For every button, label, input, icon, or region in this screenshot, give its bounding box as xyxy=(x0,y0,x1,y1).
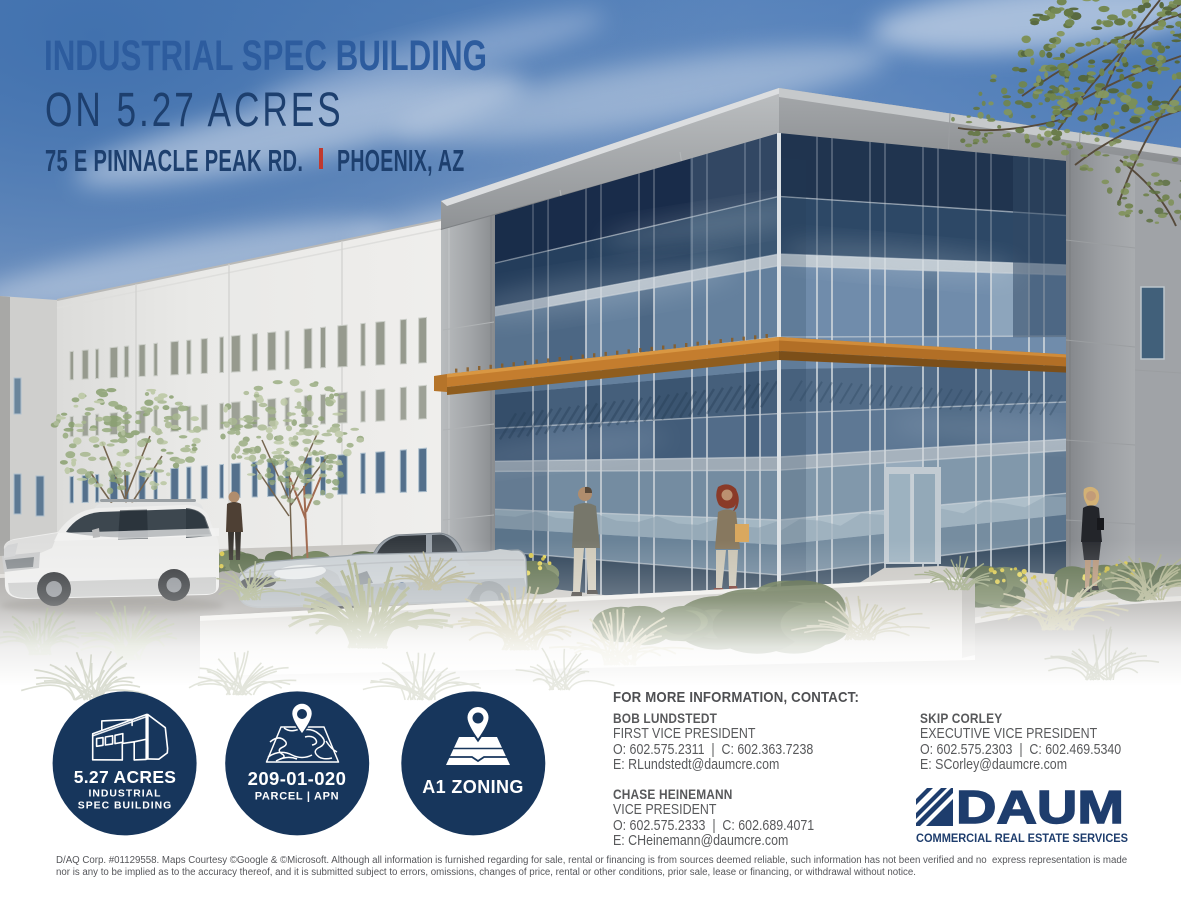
svg-text:5.27 ACRES: 5.27 ACRES xyxy=(74,767,177,787)
svg-text:DAUM: DAUM xyxy=(956,783,1124,833)
svg-text:PARCEL | APN: PARCEL | APN xyxy=(255,791,340,803)
svg-text:COMMERCIAL REAL ESTATE SERVICE: COMMERCIAL REAL ESTATE SERVICES xyxy=(916,832,1128,845)
svg-text:209-01-020: 209-01-020 xyxy=(248,768,347,789)
svg-text:INDUSTRIAL: INDUSTRIAL xyxy=(89,789,162,800)
svg-text:SPEC BUILDING: SPEC BUILDING xyxy=(78,801,172,812)
svg-text:A1 ZONING: A1 ZONING xyxy=(422,777,524,797)
